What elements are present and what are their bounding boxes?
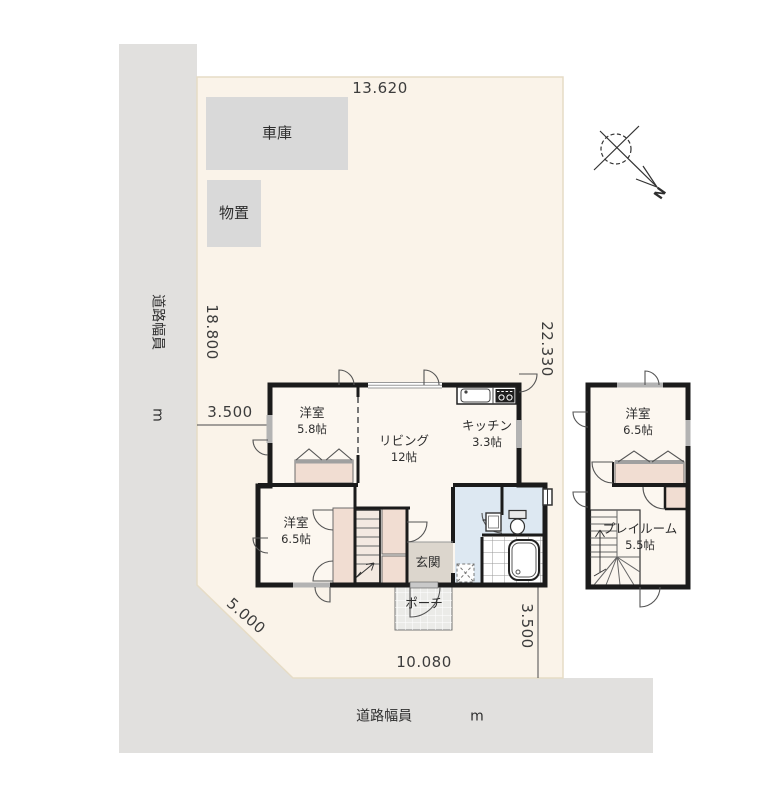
hall-closet <box>382 508 407 554</box>
road-left-label: 道路幅員 m <box>148 294 167 422</box>
dim-right: 22.330 <box>537 321 557 377</box>
window-2f-top <box>617 383 663 388</box>
living-window <box>368 382 442 389</box>
closet-2f <box>615 462 684 485</box>
room-label-porch: ポーチ <box>405 596 443 613</box>
window-2f-right <box>686 420 691 446</box>
room-label-yoshitsu65-1f: 洋室 6.5帖 <box>281 515 311 547</box>
room-label-kitchen: キッチン 3.3帖 <box>462 418 512 450</box>
room-label-genkan: 玄関 <box>415 555 440 572</box>
washer-space <box>457 564 474 582</box>
road-bottom-label: 道路幅員 m <box>356 708 484 727</box>
shoe-cabinet <box>382 556 407 583</box>
window-kitchen-right <box>516 420 522 448</box>
shed-label: 物置 <box>219 203 249 223</box>
room-label-yoshitsu65-2f: 洋室 6.5帖 <box>623 406 653 438</box>
room-label-yoshitsu58: 洋室 5.8帖 <box>297 405 327 437</box>
dim-bottom-offset: 3.500 <box>517 603 537 648</box>
bathtub <box>509 540 539 580</box>
dim-left: 18.800 <box>202 304 222 360</box>
room-label-living: リビング 12帖 <box>379 433 429 465</box>
window-yoshitsu65-bottom <box>293 583 330 588</box>
room-label-playroom: プレイルーム 5.5帖 <box>603 521 678 553</box>
closet-yoshitsu65 <box>333 508 355 583</box>
dim-bottom: 10.080 <box>396 652 452 672</box>
dim-top: 13.620 <box>352 78 408 98</box>
dim-left-offset: 3.500 <box>207 402 252 422</box>
site-plan: 13.620 18.800 3.500 22.330 5.000 10.080 … <box>0 0 768 800</box>
toilet <box>509 511 526 535</box>
closet-pole-1f <box>295 460 353 464</box>
kitchen-counter <box>457 387 516 404</box>
closet-2f-small <box>665 487 688 509</box>
site-plan-canvas <box>0 0 768 800</box>
garage-label: 車庫 <box>262 123 292 143</box>
front-door <box>410 582 438 588</box>
window-yoshitsu58-left <box>267 415 273 443</box>
bath-window <box>543 489 552 505</box>
stairs-1f <box>354 510 380 583</box>
compass-icon <box>594 126 657 187</box>
